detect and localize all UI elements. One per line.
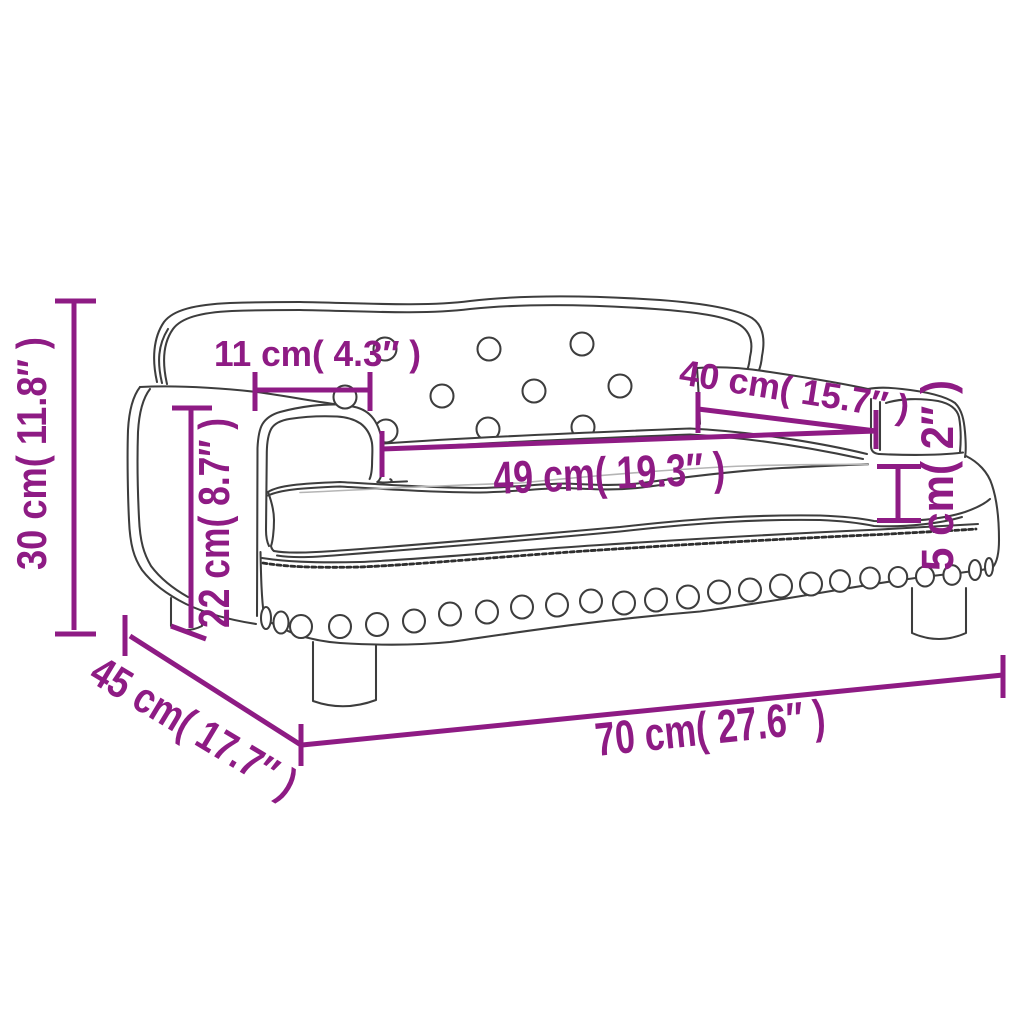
- svg-text:49 cm( 19.3″ ): 49 cm( 19.3″ ): [492, 442, 726, 504]
- svg-text:22 cm( 8.7″ ): 22 cm( 8.7″ ): [190, 418, 239, 628]
- svg-text:11 cm( 4.3″ ): 11 cm( 4.3″ ): [214, 333, 421, 374]
- svg-text:30 cm( 11.8″ ): 30 cm( 11.8″ ): [8, 337, 55, 570]
- svg-text:5 cm( 2″ ): 5 cm( 2″ ): [912, 380, 963, 571]
- svg-text:70 cm( 27.6″ ): 70 cm( 27.6″ ): [593, 689, 828, 766]
